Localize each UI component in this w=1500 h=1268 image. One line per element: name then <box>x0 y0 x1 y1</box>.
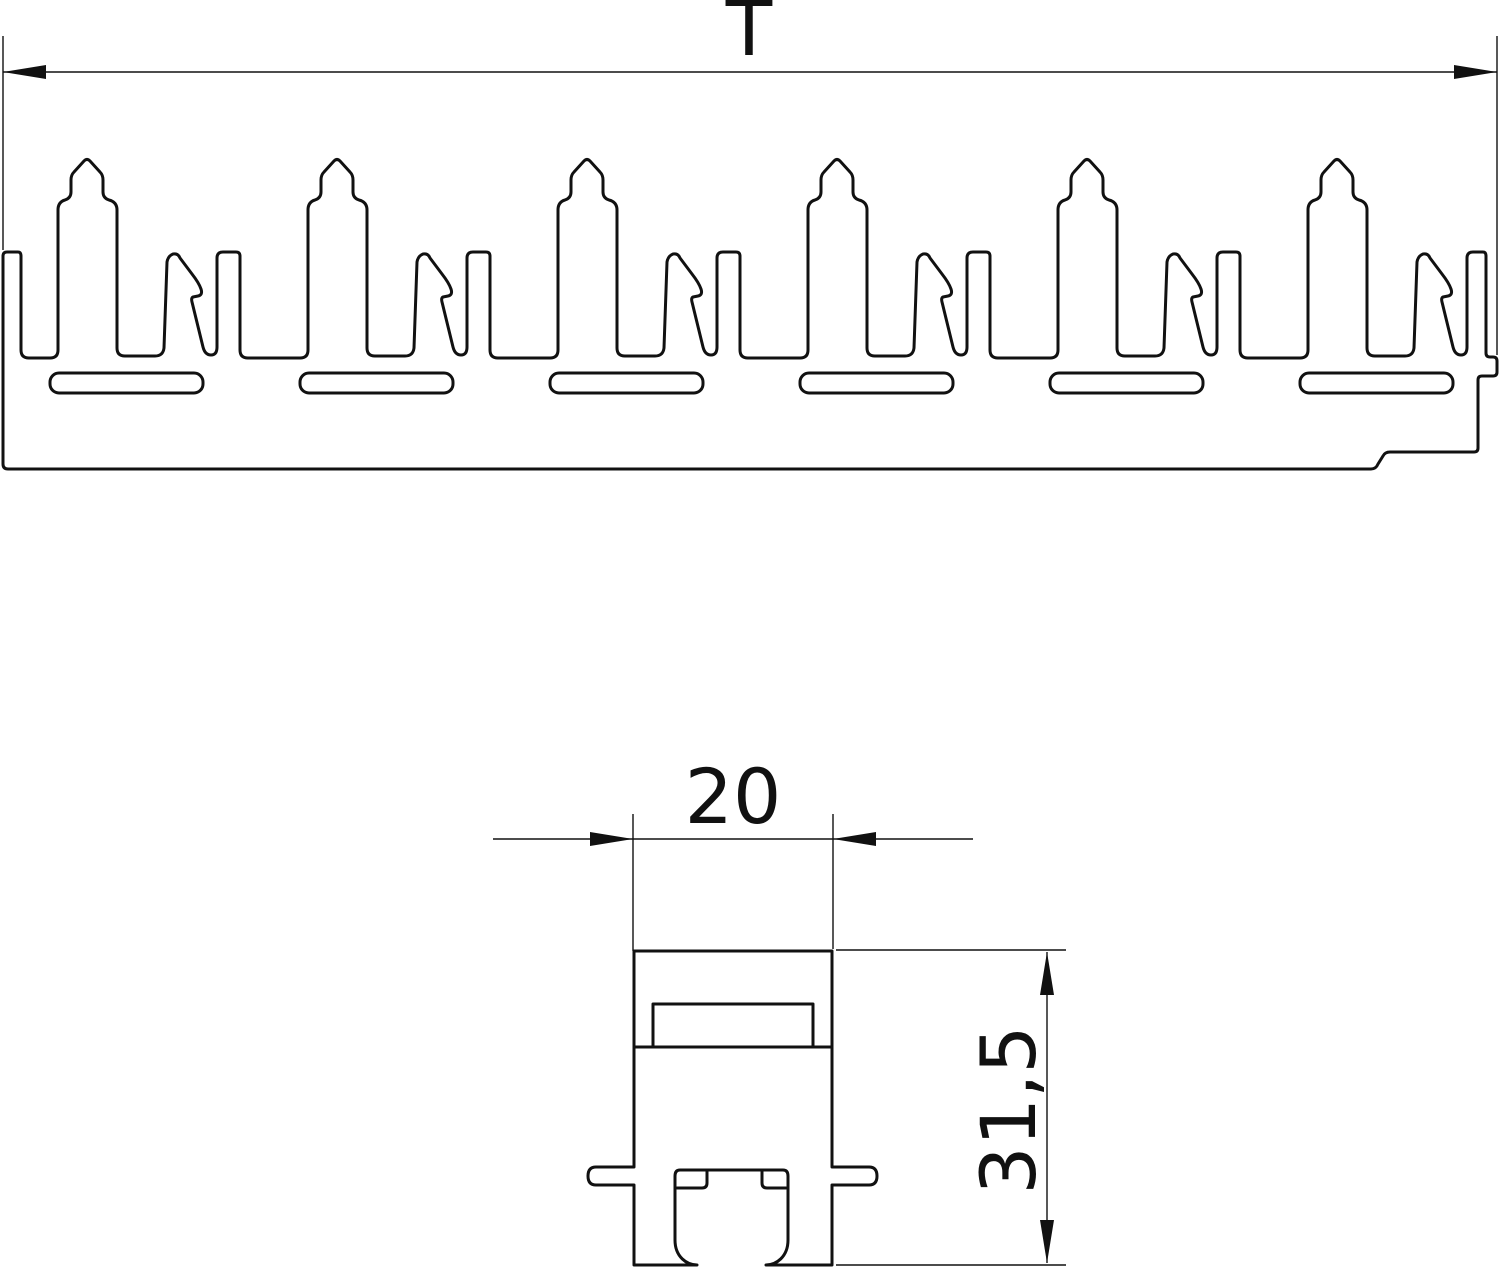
bottom-view-clip-section <box>588 951 877 1265</box>
arrowhead-left-icon <box>833 832 876 846</box>
arrowhead-right-icon <box>1454 65 1497 79</box>
technical-drawing-sheet: T 20 31,5 <box>0 0 1500 1268</box>
arrowhead-up-icon <box>1040 952 1054 995</box>
clip-inner-step-left <box>677 1170 707 1188</box>
clip-latch-window <box>653 1004 813 1047</box>
arrowhead-right-icon <box>590 832 633 846</box>
dimension-label-width: 20 <box>685 752 782 841</box>
arrowhead-down-icon <box>1040 1220 1054 1263</box>
slot-hole <box>1300 373 1453 393</box>
slot-hole <box>800 373 953 393</box>
dimension-label-T: T <box>725 0 773 73</box>
bottom-view-dimension-height: 31,5 <box>836 950 1066 1265</box>
clip-inner-step-right <box>762 1170 786 1188</box>
slot-hole <box>300 373 453 393</box>
slot-hole <box>1050 373 1203 393</box>
slot-hole <box>50 373 203 393</box>
arrowhead-left-icon <box>3 65 46 79</box>
rail-slot-holes <box>50 373 1453 393</box>
clip-body-outline <box>588 951 877 1265</box>
drawing-canvas: T 20 31,5 <box>0 0 1500 1268</box>
dimension-label-height: 31,5 <box>964 1025 1053 1194</box>
slot-hole <box>550 373 703 393</box>
top-view-rail-profile <box>3 160 1497 470</box>
rail-profile-outline <box>3 160 1497 470</box>
top-view-dimension-T: T <box>3 0 1497 355</box>
bottom-view-dimension-width: 20 <box>493 752 973 951</box>
